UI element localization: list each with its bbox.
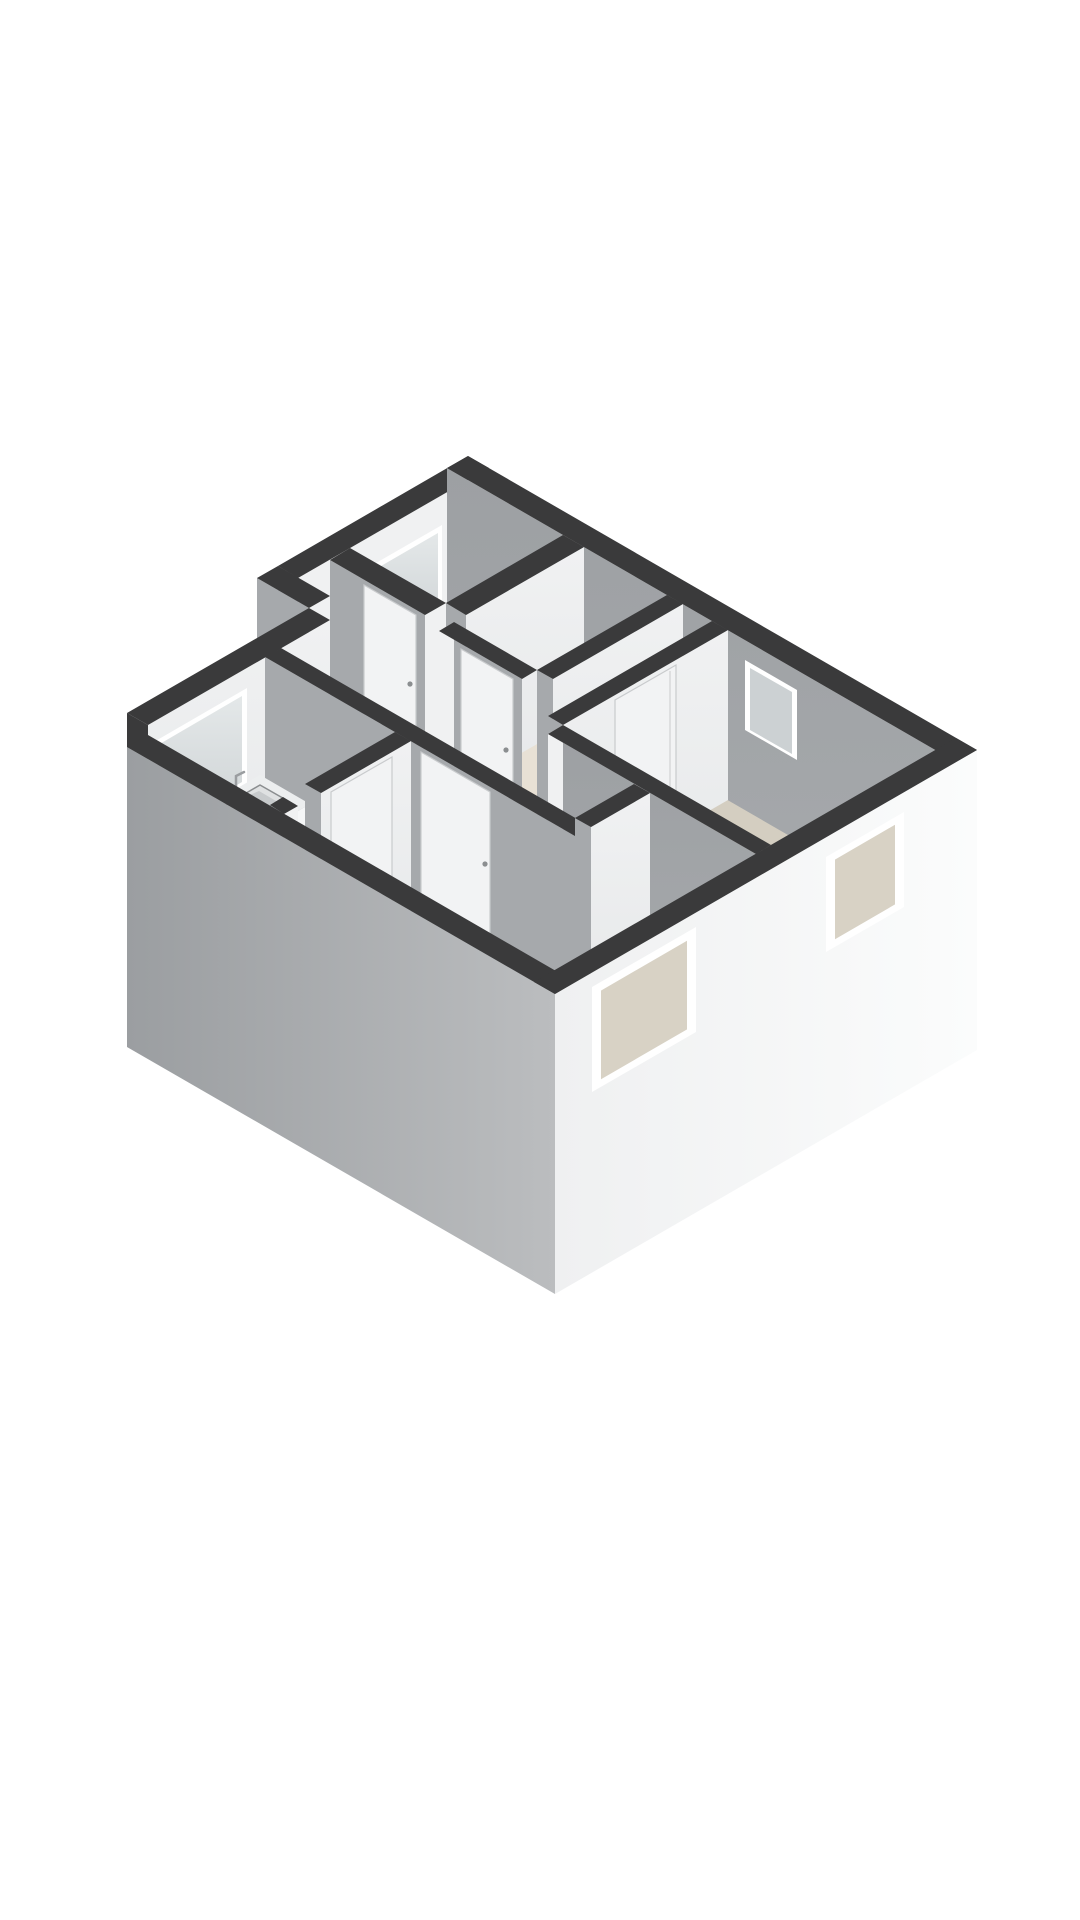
floorplan-3d-render xyxy=(0,0,1080,1920)
floorplan-page xyxy=(0,0,1080,1920)
bathroom-door-handle xyxy=(503,747,508,752)
living-room-door-handle xyxy=(482,861,487,866)
toilet-door-handle xyxy=(407,681,412,686)
